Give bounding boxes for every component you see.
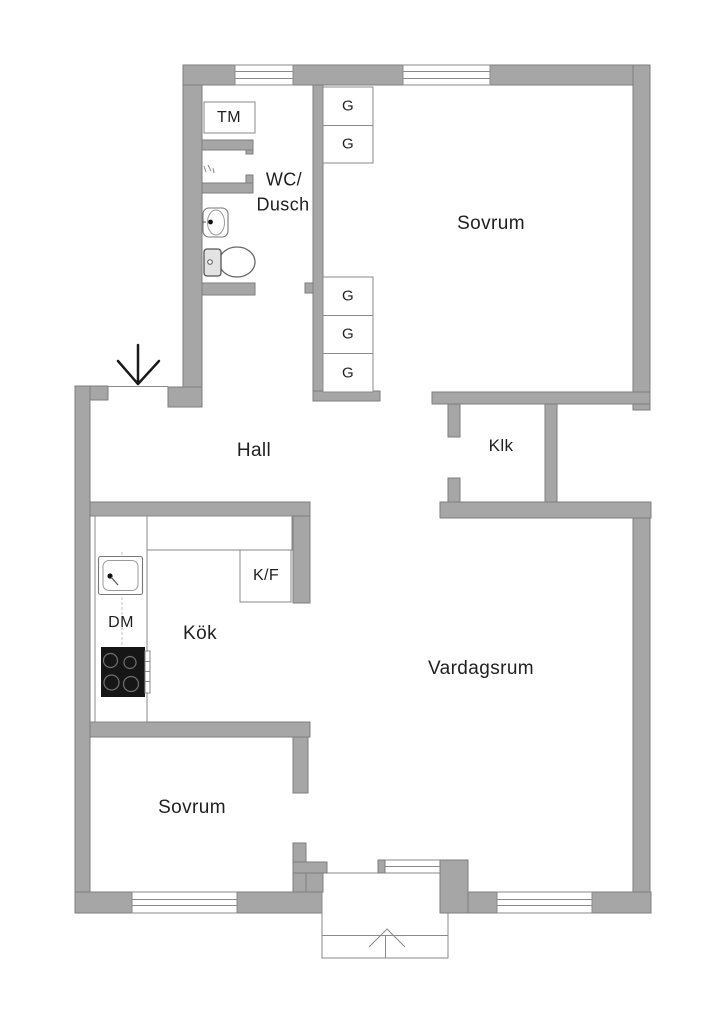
window-top-right [403, 65, 490, 85]
kitchen-sink-icon [99, 557, 143, 595]
room-label-hall: Hall [237, 440, 271, 462]
wall-kitchen-right [293, 516, 310, 603]
wall-bathroom-right [313, 85, 323, 401]
wall-klk-right [545, 404, 557, 504]
balcony [322, 860, 448, 958]
wall-tm-niche-tab [246, 150, 253, 154]
wall-right-lower [633, 502, 650, 913]
room-label-kok: Kök [183, 623, 217, 645]
floor-plan-drawing [0, 0, 724, 1024]
room-label-wc-dusch-line1: WC/ [266, 170, 302, 191]
room-label-sovrum-top: Sovrum [457, 213, 525, 235]
wall-balcony-step-left-v [306, 873, 323, 892]
fixture-label-wardrobe-2: G [342, 136, 354, 153]
fixture-label-wardrobe-4: G [342, 326, 354, 343]
wall-kitchen-top [90, 502, 310, 516]
wall-bathroom-bottom [202, 283, 255, 295]
window-bottom-left [132, 892, 237, 913]
room-label-vardagsrum: Vardagsrum [428, 658, 534, 680]
shower-mixer-icon [204, 165, 214, 173]
fixture-label-washing-machine: TM [217, 109, 241, 127]
interior-walls [90, 85, 651, 892]
wall-balcony-door-jamb [378, 860, 385, 873]
stove-icon [101, 647, 150, 697]
fixture-label-wardrobe-1: G [342, 98, 354, 115]
wall-bathroom-door-tab [305, 283, 313, 293]
wall-bedroom-right-upper [293, 737, 308, 793]
wall-klk-stub-top [448, 404, 460, 437]
wall-balcony-step-left-h [293, 862, 327, 873]
wall-right-upper [633, 65, 650, 410]
balcony-door [378, 860, 440, 873]
wall-left-upper [183, 85, 202, 407]
fixture-label-dishwasher: DM [108, 614, 134, 632]
wall-klk-stub-bottom [448, 478, 460, 504]
entrance [108, 345, 168, 387]
wall-left-lower [75, 386, 90, 913]
toilet-icon [204, 247, 255, 277]
window-top-left [235, 65, 293, 85]
fixture-label-wardrobe-5: G [342, 365, 354, 382]
entrance-arrow-icon [118, 345, 159, 384]
wall-tm-niche [202, 140, 253, 150]
room-label-wc-dusch-line2: Dusch [256, 195, 309, 216]
window-bottom-right [497, 892, 592, 913]
wardrobe-cabinets [323, 87, 373, 392]
floor-plan: TM WC/ Dusch G G G G G Sovrum Hall Klk K… [0, 0, 724, 1024]
room-label-sovrum-bottom: Sovrum [158, 797, 226, 819]
washbasin-icon [202, 208, 228, 237]
entrance-jamb-right [168, 387, 202, 407]
fixture-label-fridge-freezer: K/F [253, 567, 279, 585]
wall-klk-bottom [440, 502, 651, 518]
wall-sovrum-bottom-right [432, 392, 650, 404]
exterior-walls [75, 65, 651, 913]
fixture-label-wardrobe-3: G [342, 288, 354, 305]
wall-balcony-step-right [440, 860, 468, 913]
wall-shower-niche [202, 183, 253, 193]
wall-bedroom-top [90, 722, 310, 737]
room-label-klk: Klk [489, 436, 514, 456]
wall-shower-niche-tab [246, 175, 253, 183]
